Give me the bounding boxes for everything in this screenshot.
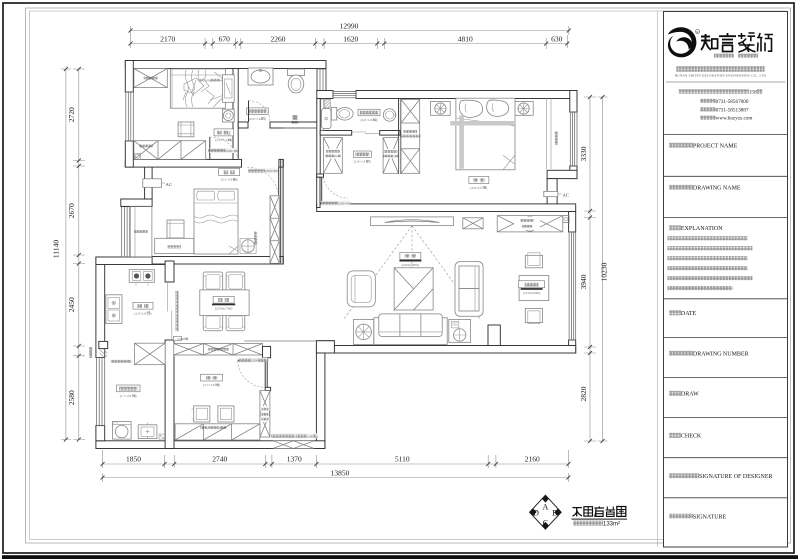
svg-text:EXPLANATION: EXPLANATION <box>681 226 723 232</box>
svg-text:2200×800: 2200×800 <box>265 169 279 173</box>
svg-text:): ) <box>265 117 266 121</box>
svg-text:2580: 2580 <box>67 390 76 405</box>
svg-text:0731-58567000: 0731-58567000 <box>716 99 749 105</box>
svg-text:www.hnzyzs.com: www.hnzyzs.com <box>716 116 753 122</box>
svg-text:2740: 2740 <box>212 455 227 464</box>
svg-text:2670: 2670 <box>67 203 76 218</box>
svg-text:2200: 2200 <box>306 434 313 438</box>
svg-text:(2.7×2.8: (2.7×2.8 <box>203 383 215 387</box>
svg-text:A: A <box>543 503 549 512</box>
svg-text:DRAWING NAME: DRAWING NAME <box>693 186 741 192</box>
svg-text:AC: AC <box>166 182 172 187</box>
svg-text:(4.6×3.9: (4.6×3.9 <box>470 186 482 190</box>
svg-text:2720: 2720 <box>67 107 76 122</box>
svg-text:12990: 12990 <box>340 22 359 31</box>
svg-text:DATE: DATE <box>681 311 697 317</box>
svg-text:): ) <box>150 311 151 315</box>
svg-text:2200×800: 2200×800 <box>225 149 239 153</box>
svg-text:): ) <box>486 186 487 190</box>
svg-text:1850: 1850 <box>126 455 141 464</box>
svg-text:(2250x2760): (2250x2760) <box>215 307 233 311</box>
svg-text:DRAW: DRAW <box>681 392 699 398</box>
svg-text:D: D <box>533 509 539 518</box>
svg-text:3330: 3330 <box>579 146 588 161</box>
svg-text:158: 158 <box>749 90 757 96</box>
svg-text:(1.9×2.6: (1.9×2.6 <box>135 311 147 315</box>
svg-text:): ) <box>231 138 232 142</box>
svg-text:133m²: 133m² <box>603 521 620 527</box>
svg-text:PROJECT NAME: PROJECT NAME <box>693 144 738 150</box>
svg-text:C: C <box>543 519 548 528</box>
svg-text:2200: 2200 <box>177 337 184 341</box>
svg-text:2: 2 <box>393 154 395 158</box>
svg-text:5110: 5110 <box>395 455 410 464</box>
svg-text:): ) <box>219 426 220 430</box>
svg-text:(1.8×1.4: (1.8×1.4 <box>354 160 366 164</box>
svg-text:B: B <box>552 509 557 518</box>
svg-text:2160: 2160 <box>525 455 540 464</box>
svg-text:): ) <box>376 118 377 122</box>
svg-text:11140: 11140 <box>52 240 61 258</box>
svg-text:670: 670 <box>219 35 231 44</box>
svg-text:1: 1 <box>336 154 338 158</box>
svg-text:(2.0×1.6: (2.0×1.6 <box>249 117 261 121</box>
svg-text:2260: 2260 <box>271 35 286 44</box>
svg-text:CHECK: CHECK <box>681 434 702 440</box>
svg-text:4810: 4810 <box>458 35 473 44</box>
svg-text:): ) <box>236 178 237 182</box>
svg-text:0731-58513887: 0731-58513887 <box>716 107 749 113</box>
svg-text:1620: 1620 <box>343 35 358 44</box>
svg-text:SIGNATURE: SIGNATURE <box>693 514 727 520</box>
svg-text:3940: 3940 <box>579 274 588 289</box>
svg-text:(4200x3850): (4200x3850) <box>402 263 420 267</box>
svg-text:2170: 2170 <box>160 35 175 44</box>
svg-text:10230: 10230 <box>600 262 609 281</box>
svg-text:(2150x1600): (2150x1600) <box>523 291 541 295</box>
svg-text:2200: 2200 <box>251 359 258 363</box>
svg-text:): ) <box>219 383 220 387</box>
svg-text:R: R <box>696 30 698 34</box>
svg-text:2100: 2100 <box>203 79 210 83</box>
svg-text:(2.0×1.6: (2.0×1.6 <box>361 118 373 122</box>
svg-text:DRAWING NUMBER: DRAWING NUMBER <box>693 352 749 358</box>
svg-text:2200×800: 2200×800 <box>338 202 352 206</box>
svg-text:1370: 1370 <box>287 455 302 464</box>
svg-text:13850: 13850 <box>331 469 350 478</box>
svg-text:2450: 2450 <box>67 297 76 312</box>
svg-text:630: 630 <box>551 35 563 44</box>
svg-text:(1.7×2.8: (1.7×2.8 <box>120 394 132 398</box>
svg-text:): ) <box>370 160 371 164</box>
svg-text:): ) <box>317 434 318 438</box>
svg-text:SIGNATURE OF DESIGNER: SIGNATURE OF DESIGNER <box>699 474 773 480</box>
svg-text:(3.3×3.9: (3.3×3.9 <box>221 178 233 182</box>
svg-text:AC: AC <box>563 193 569 198</box>
svg-text:): ) <box>135 394 136 398</box>
svg-text:2820: 2820 <box>579 386 588 401</box>
